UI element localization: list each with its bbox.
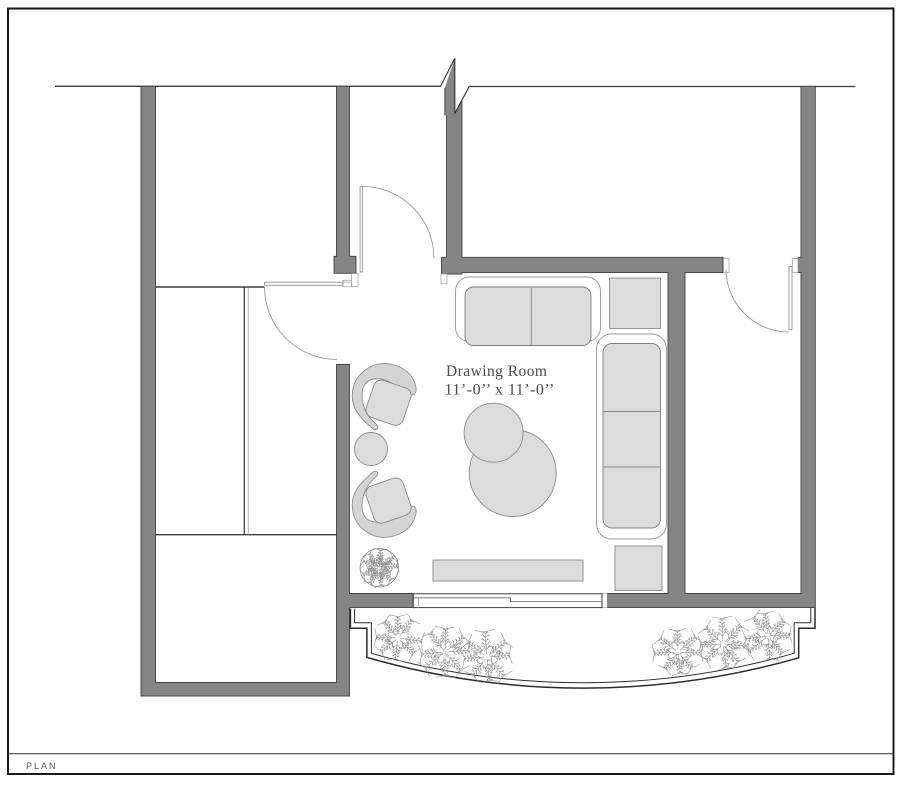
svg-text:Drawing Room: Drawing Room [446, 363, 547, 380]
svg-text:PLAN: PLAN [26, 761, 58, 771]
svg-text:11’-0’’ x 11’-0’’: 11’-0’’ x 11’-0’’ [445, 382, 555, 399]
